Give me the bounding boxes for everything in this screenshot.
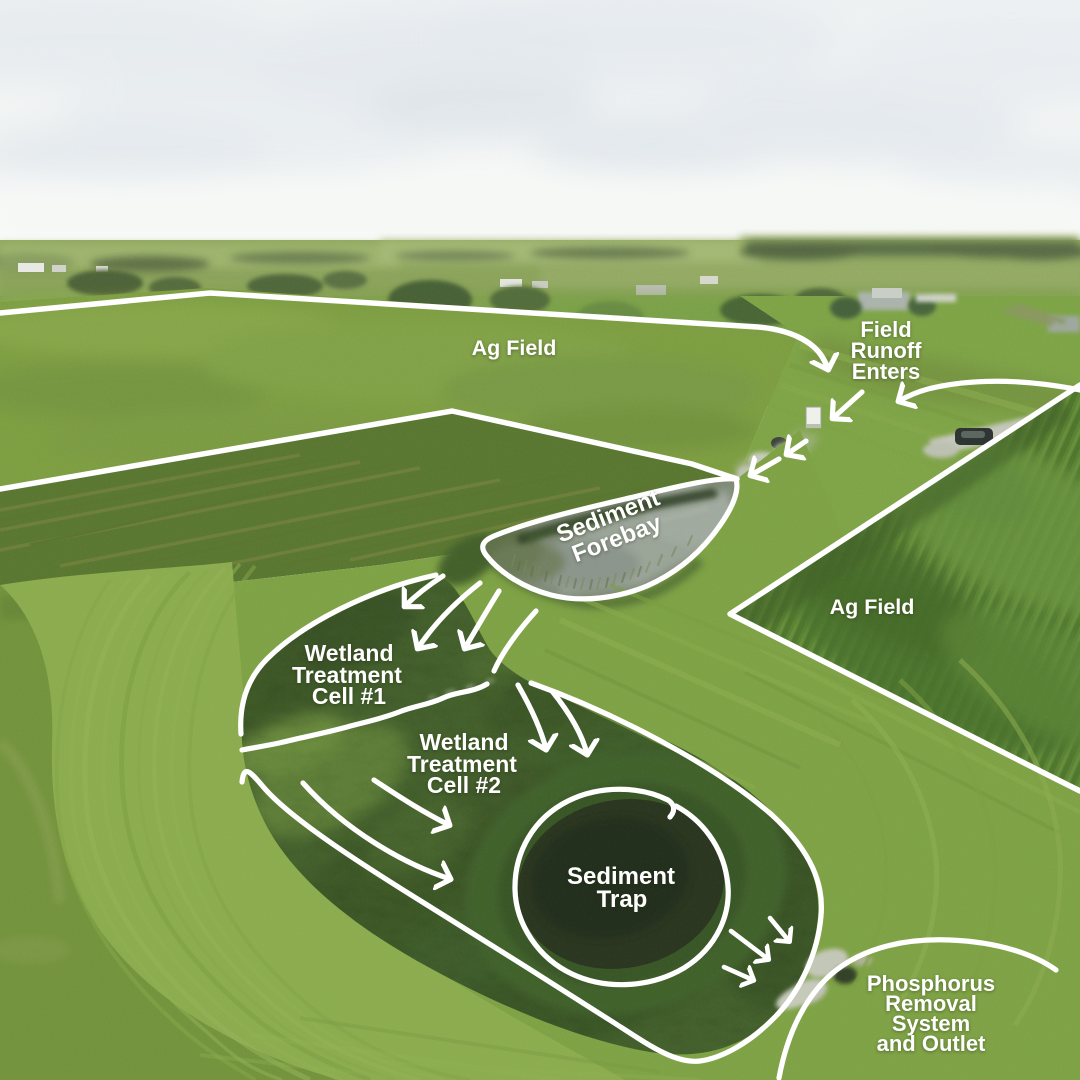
svg-text:Ag Field: Ag Field (830, 595, 915, 619)
svg-text:Cell #1: Cell #1 (312, 683, 386, 709)
svg-text:and Outlet: and Outlet (877, 1031, 986, 1056)
svg-text:Ag Field: Ag Field (472, 336, 557, 360)
svg-text:Trap: Trap (597, 886, 648, 913)
svg-text:Cell #2: Cell #2 (427, 772, 501, 798)
svg-text:Enters: Enters (852, 359, 920, 384)
